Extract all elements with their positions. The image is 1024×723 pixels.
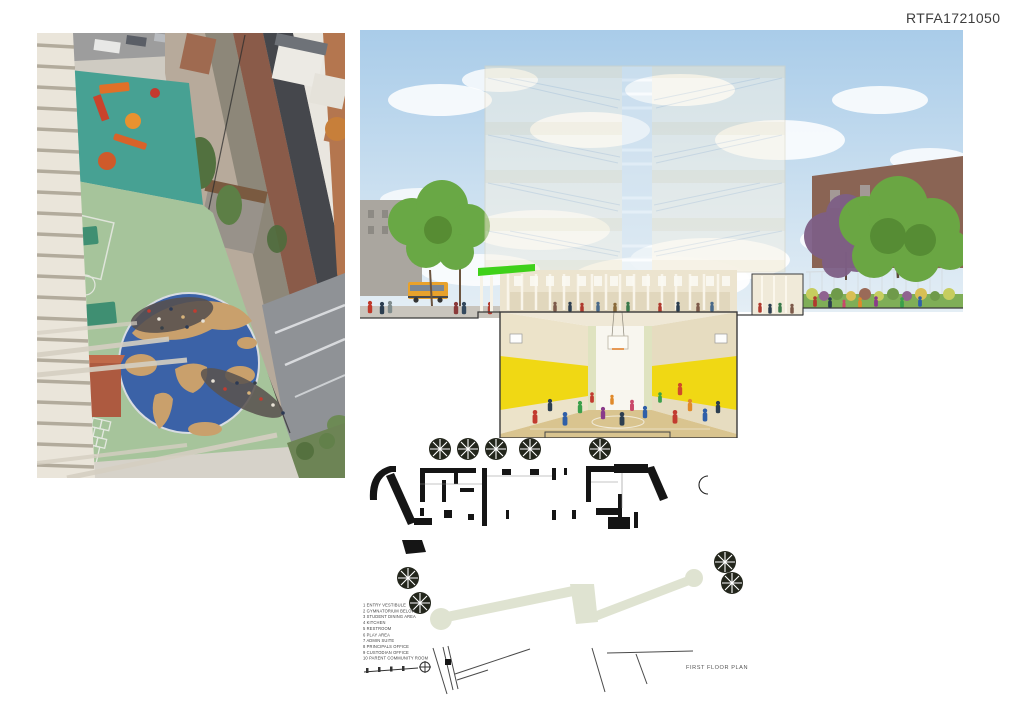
north-arrow xyxy=(419,661,431,673)
board-id: RTFA1721050 xyxy=(906,10,994,26)
section-rendering-art xyxy=(360,30,963,438)
play-path xyxy=(430,569,703,630)
scale-bar xyxy=(364,666,418,673)
ghost-upper-floors xyxy=(485,66,785,272)
plan-legend: 1 ENTRY VESTIBULE 2 GYMNATORIUM BELOW 3 … xyxy=(363,603,428,662)
ground-floor-interior xyxy=(478,264,737,313)
presentation-board: RTFA1721050 xyxy=(0,0,1024,723)
gymnasium-section xyxy=(500,312,737,438)
plan-arc-detail xyxy=(699,476,708,494)
right-corridor-section xyxy=(752,274,803,315)
plan-legend-item: 10 PARENT COMMUNITY ROOM xyxy=(363,656,428,662)
plan-walls xyxy=(370,464,668,554)
playground-photo-art xyxy=(37,33,345,478)
street-lines xyxy=(433,646,693,694)
dimension-bracket xyxy=(545,432,670,438)
aerial-playground-photo xyxy=(37,33,345,478)
plan-title-label: FIRST FLOOR PLAN xyxy=(686,665,748,671)
plan-partitions xyxy=(420,473,622,508)
building-section-rendering xyxy=(360,30,963,438)
first-floor-plan-drawing: 1 ENTRY VESTIBULE 2 GYMNATORIUM BELOW 3 … xyxy=(356,422,780,707)
